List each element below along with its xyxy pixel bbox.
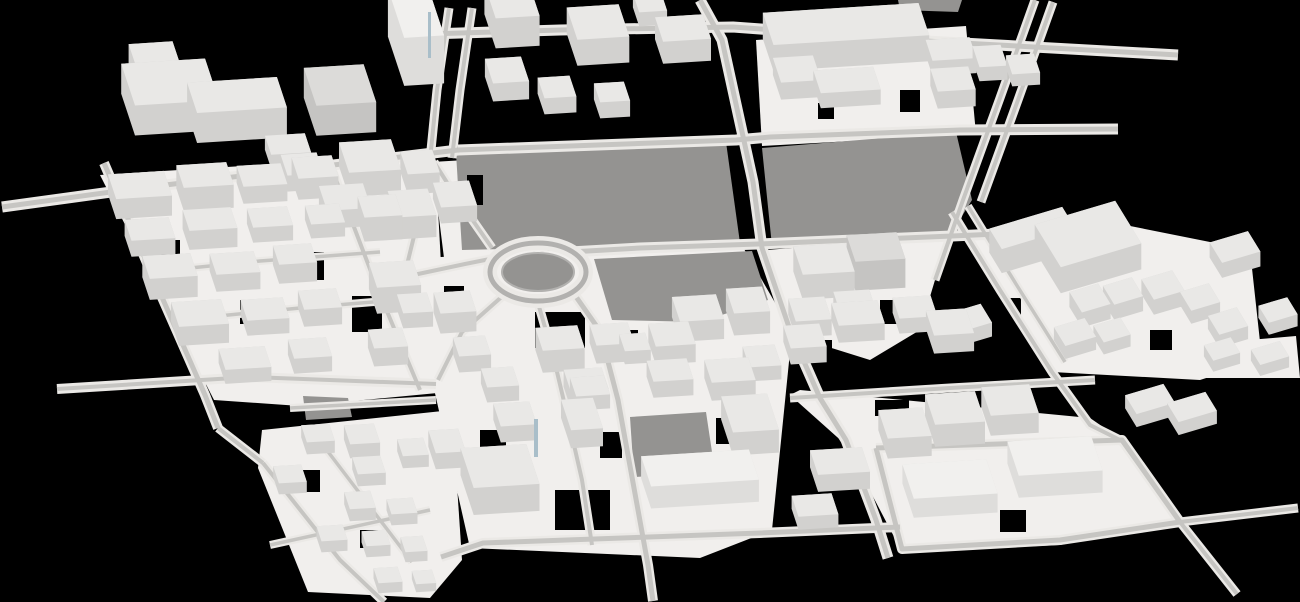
building-extrusion [434,290,477,333]
building-roof [453,336,491,357]
building-roof [704,357,755,383]
building-extrusion [831,300,884,343]
building-extrusion [655,14,711,64]
building-extrusion [374,567,403,594]
building-roof [847,232,906,262]
building-extrusion [641,450,759,509]
building-roof [292,155,339,178]
building-roof [176,162,233,188]
building-roof [304,64,376,106]
building-extrusion [428,429,466,470]
building-roof [362,530,391,547]
building-roof [237,163,288,187]
building-roof [926,37,977,61]
building-extrusion [171,299,229,346]
building-extrusion [647,358,694,397]
building-roof [344,424,380,445]
building-roof [810,447,870,475]
building-extrusion [187,77,287,143]
building-extrusion [344,491,376,522]
building-extrusion [298,288,342,326]
building-roof [339,139,401,173]
building-roof [247,206,293,227]
building-roof [352,456,386,475]
building-extrusion [619,333,651,365]
building-roof [210,251,261,275]
building-extrusion [108,171,172,219]
building-extrusion [273,465,307,495]
building-roof [298,288,342,309]
building-roof [305,204,345,225]
building-extrusion [301,424,335,455]
building-roof [831,300,884,326]
map-scene [0,0,1300,602]
building-extrusion [125,217,176,257]
building-extrusion [481,367,519,403]
building-roof [813,67,880,93]
building-roof [125,217,176,241]
building-extrusion [847,232,906,291]
building-extrusion [433,181,477,224]
map-gap [1150,330,1172,350]
building-extrusion [493,402,536,443]
building-extrusion [412,570,436,593]
building-extrusion [813,67,880,108]
building-roof [981,384,1038,415]
building-roof [594,82,630,103]
building-roof [288,337,332,358]
map-gap [900,90,920,112]
building-roof [397,293,433,314]
building-extrusion [1007,436,1102,497]
building-roof [171,299,229,327]
building-roof [241,297,290,320]
building-extrusion [567,4,630,65]
building-extrusion [485,57,529,102]
building-roof [930,66,975,91]
building-roof [788,297,831,322]
building-roof [374,567,403,584]
map-gap [1000,510,1026,532]
building-extrusion [1006,54,1040,87]
building-extrusion [981,384,1038,435]
building-roof [535,325,584,350]
building-extrusion [304,64,376,136]
building-roof [672,294,724,321]
building-extrusion [648,321,695,364]
building-extrusion [368,328,408,367]
building-roof [368,328,408,349]
building-extrusion [902,459,997,517]
building-roof [142,253,197,279]
building-extrusion [783,324,826,365]
building-extrusion [237,163,288,204]
building-extrusion [926,308,974,353]
building-extrusion [810,447,870,492]
building-roof [570,376,610,397]
building-roof [493,402,536,427]
glass-facade-accent [534,419,538,457]
building-extrusion [453,336,491,373]
building-extrusion [538,76,577,115]
building-extrusion [387,498,418,526]
building-roof [481,367,519,388]
building-roof [567,4,630,39]
building-roof [434,290,477,313]
building-extrusion [362,530,391,558]
building-extrusion [210,251,261,292]
building-extrusion [594,82,630,119]
building-roof [387,498,418,515]
building-roof [793,243,854,275]
building-roof [369,260,421,287]
building-extrusion [241,297,290,335]
building-roof [358,194,403,217]
roundabout-island [502,253,574,291]
building-extrusion [247,206,293,242]
building-extrusion [397,438,429,469]
glass-facade-accent [428,12,431,58]
building-roof [183,207,238,231]
building-roof [273,465,307,484]
building-roof [187,77,287,113]
building-extrusion [352,456,386,487]
building-extrusion [273,243,317,283]
building-extrusion [344,424,380,459]
building-extrusion [973,45,1008,82]
building-extrusion [535,325,584,372]
map-gap [600,432,622,458]
building-extrusion [930,66,975,108]
building-extrusion [925,391,985,446]
building-roof [461,444,540,488]
building-extrusion [878,407,931,458]
park-area [762,132,972,246]
building-roof [219,346,272,370]
building-roof [538,76,577,99]
park-area [456,142,740,250]
building-extrusion [792,493,839,529]
building-extrusion [397,293,433,329]
building-roof [273,243,317,264]
building-roof [902,459,997,498]
building-roof [926,308,974,335]
building-extrusion [305,204,345,239]
building-extrusion [183,207,238,250]
building-roof [655,14,711,42]
building-roof [1007,436,1102,475]
building-extrusion [176,162,233,211]
building-extrusion [726,287,770,336]
map-3d-view[interactable] [0,0,1300,602]
building-extrusion [358,194,403,241]
building-roof [647,358,694,381]
building-extrusion [219,346,272,384]
building-roof [317,525,348,542]
building-extrusion [317,525,348,553]
building-roof [878,407,931,438]
building-roof [925,391,985,424]
building-roof [108,171,172,199]
building-extrusion [142,253,197,300]
building-roof [783,324,826,349]
building-roof [265,133,311,154]
building-extrusion [704,357,755,401]
building-roof [301,424,335,443]
building-roof [648,321,695,346]
building-extrusion [288,337,332,373]
building-extrusion [401,536,428,563]
building-extrusion [461,444,540,515]
building-roof [792,493,839,516]
